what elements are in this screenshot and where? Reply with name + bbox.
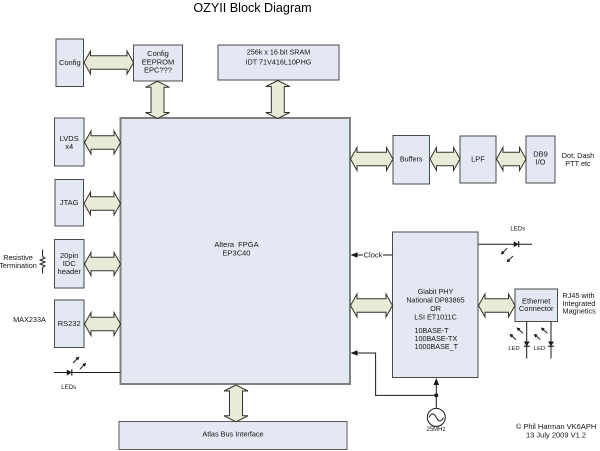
svg-text:LED: LED <box>508 346 519 352</box>
svg-text:JTAG: JTAG <box>60 198 79 207</box>
svg-text:Connector: Connector <box>519 304 554 313</box>
svg-text:Magnetics: Magnetics <box>563 306 597 315</box>
svg-text:MAX233A: MAX233A <box>13 315 46 324</box>
svg-text:IDT 71V416L10PHG: IDT 71V416L10PHG <box>246 57 312 66</box>
svg-text:I/O: I/O <box>535 158 545 167</box>
svg-text:Buffers: Buffers <box>400 155 423 164</box>
svg-text:1000BASE_T: 1000BASE_T <box>415 342 459 351</box>
svg-text:EP3C40: EP3C40 <box>223 249 251 258</box>
svg-text:LEDs: LEDs <box>510 225 525 232</box>
svg-text:OZYII Block Diagram: OZYII Block Diagram <box>193 1 311 15</box>
svg-text:LEDs: LEDs <box>61 384 76 391</box>
svg-text:13 July 2009 V1.2: 13 July 2009 V1.2 <box>526 430 586 439</box>
svg-text:LSI ET1011C: LSI ET1011C <box>414 312 457 321</box>
svg-text:256k x 16 bit SRAM: 256k x 16 bit SRAM <box>247 47 311 56</box>
svg-text:x4: x4 <box>65 142 73 151</box>
svg-text:header: header <box>58 267 82 276</box>
svg-text:Termination: Termination <box>0 261 37 270</box>
svg-text:Config: Config <box>59 58 81 67</box>
svg-text:Clock: Clock <box>364 250 383 259</box>
svg-text:Atlas Bus Interface: Atlas Bus Interface <box>202 429 263 438</box>
svg-text:25MHz: 25MHz <box>426 427 445 433</box>
svg-text:RS232: RS232 <box>58 319 81 328</box>
svg-text:PTT etc: PTT etc <box>565 159 591 168</box>
svg-text:LED: LED <box>534 346 545 352</box>
svg-text:LPF: LPF <box>471 154 485 163</box>
svg-text:EPC???: EPC??? <box>144 66 172 75</box>
